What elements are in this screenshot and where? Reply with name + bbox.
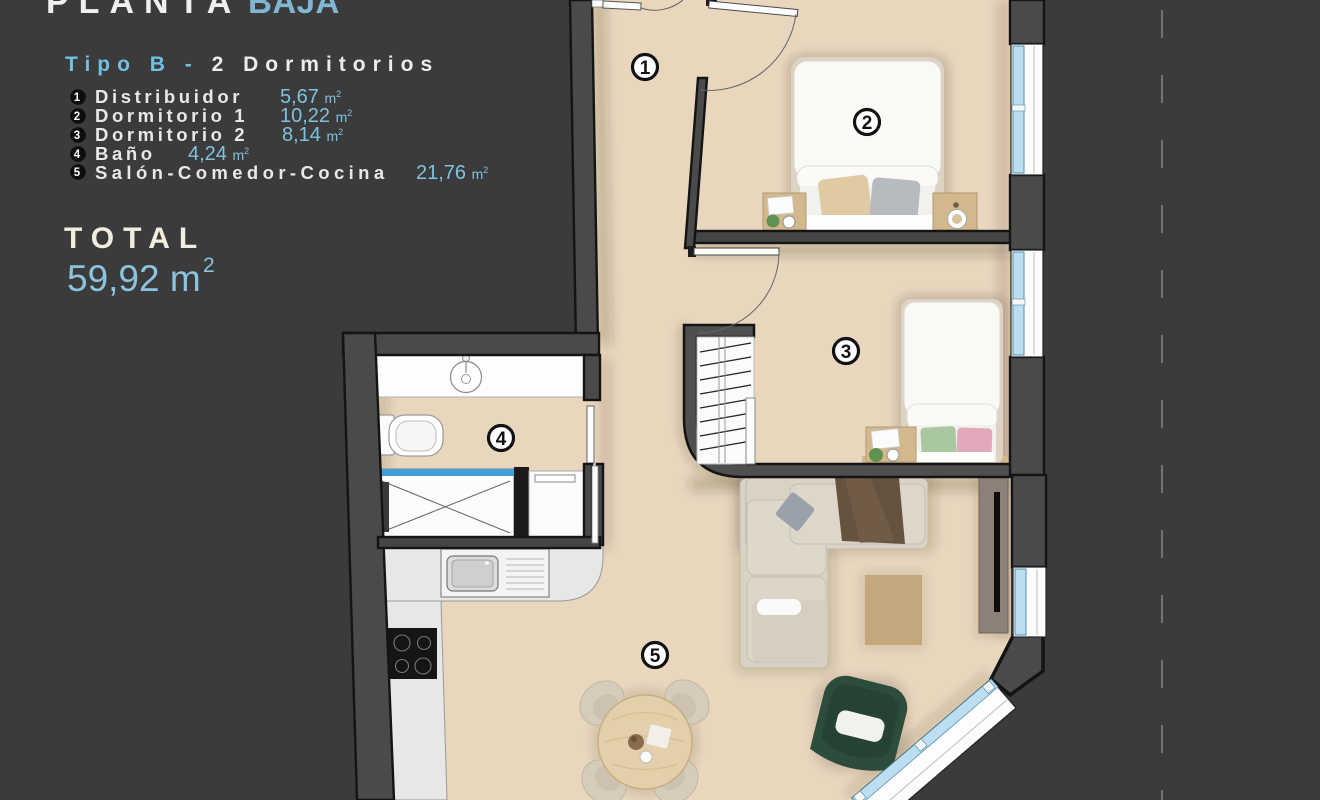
svg-text:2: 2 [862,113,873,134]
svg-text:59,92 m: 59,92 m [67,258,201,299]
svg-text:2: 2 [74,111,80,123]
svg-text:4: 4 [496,429,507,450]
svg-text:4: 4 [74,149,81,161]
svg-text:Distribuidor: Distribuidor [95,86,243,107]
svg-text:5: 5 [650,646,661,667]
svg-text:BAJA: BAJA [248,0,340,20]
svg-text:1: 1 [74,92,81,104]
svg-text:5: 5 [74,167,81,179]
svg-text:1: 1 [640,58,651,79]
svg-text:Baño: Baño [95,143,156,164]
svg-text:TOTAL: TOTAL [64,222,206,255]
svg-text:21,76 m2: 21,76 m2 [416,162,488,184]
svg-text:2: 2 [203,254,215,277]
svg-text:3: 3 [74,130,80,142]
svg-text:8,14 m2: 8,14 m2 [282,124,343,146]
svg-text:Tipo B - 2 Dormitorios: Tipo B - 2 Dormitorios [65,53,439,76]
svg-text:3: 3 [841,342,852,363]
svg-text:Dormitorio 1: Dormitorio 1 [95,105,248,126]
svg-text:Salón-Comedor-Cocina: Salón-Comedor-Cocina [95,162,389,183]
svg-text:Dormitorio 2: Dormitorio 2 [95,124,248,145]
svg-text:PLANTA: PLANTA [46,0,241,21]
svg-text:4,24 m2: 4,24 m2 [188,143,249,165]
